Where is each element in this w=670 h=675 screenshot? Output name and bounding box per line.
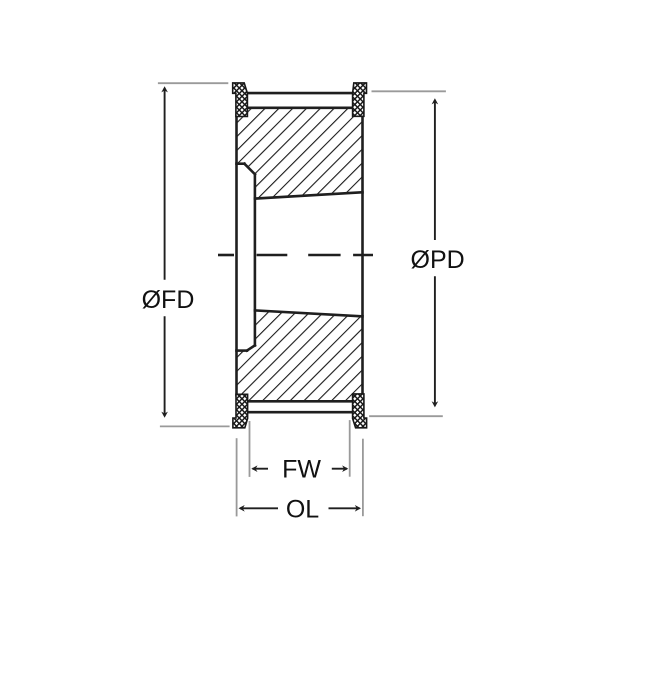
svg-text:FW: FW — [282, 456, 321, 484]
svg-text:OL: OL — [286, 496, 319, 524]
svg-text:ØPD: ØPD — [411, 246, 465, 274]
svg-text:ØFD: ØFD — [142, 286, 195, 314]
